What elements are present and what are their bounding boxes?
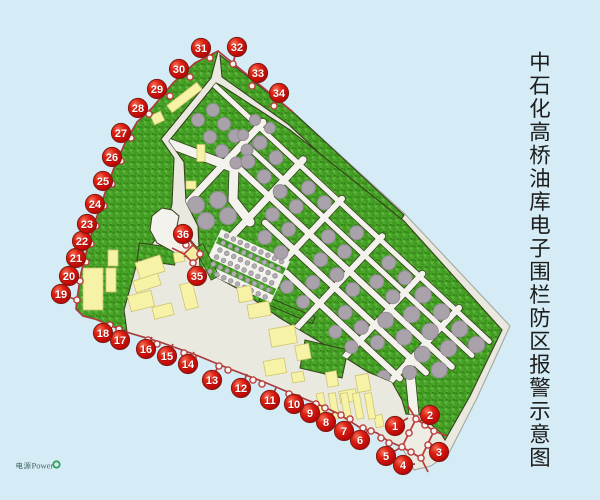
svg-text:29: 29 <box>151 84 163 96</box>
svg-text:20: 20 <box>63 271 75 283</box>
svg-text:34: 34 <box>273 88 286 100</box>
svg-text:26: 26 <box>106 152 118 164</box>
svg-text:21: 21 <box>70 253 82 265</box>
svg-text:31: 31 <box>195 43 207 55</box>
svg-text:8: 8 <box>323 417 329 429</box>
svg-text:2: 2 <box>427 410 433 422</box>
svg-text:30: 30 <box>173 64 185 76</box>
svg-text:35: 35 <box>191 271 203 283</box>
svg-text:25: 25 <box>97 176 109 188</box>
svg-text:36: 36 <box>177 229 189 241</box>
svg-text:22: 22 <box>76 236 88 248</box>
svg-text:33: 33 <box>252 68 264 80</box>
svg-text:4: 4 <box>400 460 407 472</box>
svg-text:3: 3 <box>436 447 442 459</box>
svg-text:16: 16 <box>140 344 152 356</box>
svg-text:17: 17 <box>114 335 126 347</box>
svg-text:15: 15 <box>161 351 173 363</box>
svg-text:5: 5 <box>383 451 389 463</box>
svg-text:10: 10 <box>288 399 300 411</box>
svg-text:28: 28 <box>132 103 144 115</box>
svg-text:13: 13 <box>206 375 218 387</box>
svg-text:24: 24 <box>89 199 102 211</box>
svg-text:18: 18 <box>97 328 109 340</box>
svg-text:6: 6 <box>357 435 363 447</box>
svg-text:12: 12 <box>235 383 247 395</box>
svg-text:19: 19 <box>55 289 67 301</box>
svg-text:7: 7 <box>341 426 347 438</box>
svg-text:14: 14 <box>182 359 195 371</box>
svg-text:27: 27 <box>115 128 127 140</box>
svg-text:11: 11 <box>264 395 276 407</box>
svg-text:9: 9 <box>307 408 313 420</box>
svg-text:23: 23 <box>81 219 93 231</box>
svg-text:32: 32 <box>231 42 243 54</box>
svg-text:Power: Power <box>32 461 54 471</box>
svg-text:1: 1 <box>392 421 398 433</box>
